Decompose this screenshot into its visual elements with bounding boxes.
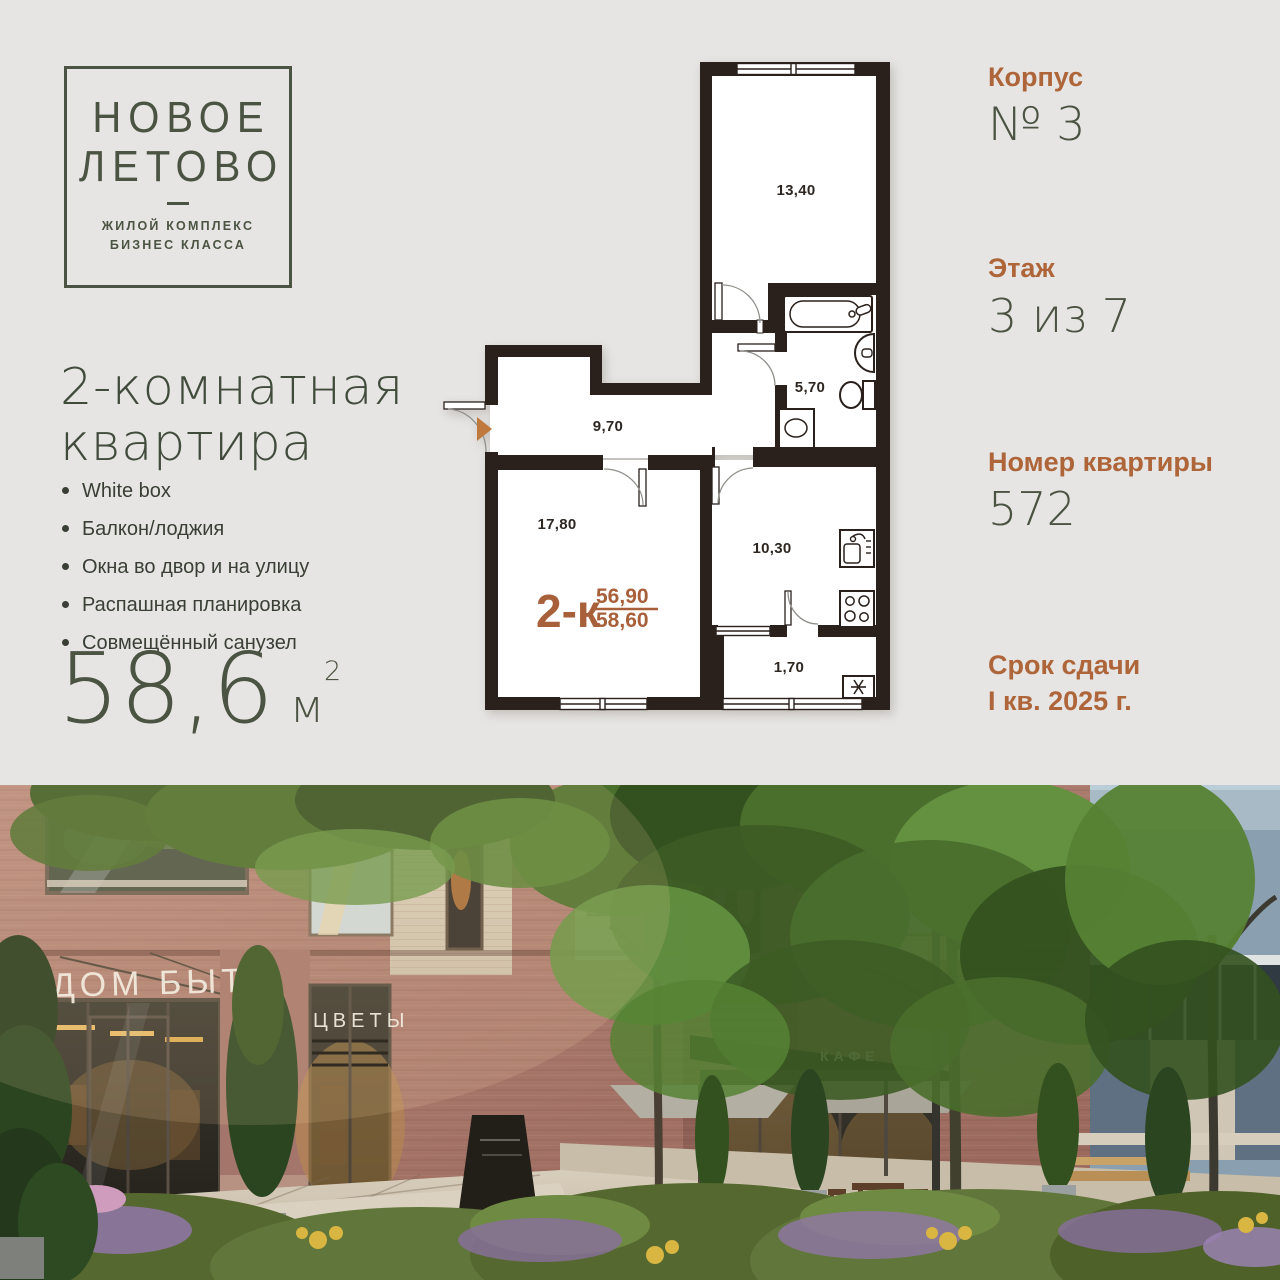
building-value: № 3 <box>988 97 1085 151</box>
feature-item: White box <box>62 480 309 503</box>
living-area-total: 56,90 <box>596 585 649 608</box>
bedroom-area: 13,40 <box>776 182 815 199</box>
apartment-type: 2-к <box>536 585 601 637</box>
stove-icon <box>840 591 874 627</box>
apartment-title-line2: квартира <box>60 416 404 472</box>
floor-value: 3 из 7 <box>988 289 1131 343</box>
bathroom-area: 5,70 <box>795 379 825 396</box>
logo-sub2: БИЗНЕС КЛАССА <box>102 236 254 255</box>
flower-bed <box>0 1183 1280 1280</box>
logo-subtitle: ЖИЛОЙ КОМПЛЕКС БИЗНЕС КЛАССА <box>102 217 254 256</box>
apartment-number-label: Номер квартиры <box>988 447 1213 478</box>
planter <box>0 1237 44 1279</box>
building-label: Корпус <box>988 62 1083 93</box>
logo-divider <box>167 202 189 205</box>
feature-item: Балкон/лоджия <box>62 518 309 541</box>
toilet-icon <box>863 381 875 409</box>
feature-item: Окна во двор и на улицу <box>62 556 309 579</box>
flyer-page: НОВОЕ ЛЕТОВО ЖИЛОЙ КОМПЛЕКС БИЗНЕС КЛАСС… <box>0 0 1280 1280</box>
logo-sub1: ЖИЛОЙ КОМПЛЕКС <box>102 217 254 236</box>
logo-line2: ЛЕТОВО <box>72 143 284 191</box>
total-area: 58,6м2 <box>58 640 341 737</box>
apartment-number-value: 572 <box>988 482 1076 536</box>
feature-item: Распашная планировка <box>62 594 309 617</box>
floor-label: Этаж <box>988 253 1055 284</box>
area-value: 58,6 <box>58 632 274 745</box>
area-unit: м <box>290 680 324 733</box>
deadline-value: I кв. 2025 г. <box>988 686 1132 717</box>
balcony-area: 1,70 <box>774 659 804 676</box>
apartment-type-block: 2-к 56,90 58,60 <box>536 585 658 637</box>
logo: НОВОЕ ЛЕТОВО ЖИЛОЙ КОМПЛЕКС БИЗНЕС КЛАСС… <box>64 66 292 288</box>
apartment-title-line1: 2-комнатная <box>60 360 404 416</box>
deadline-label: Срок сдачи <box>988 650 1140 681</box>
living-area: 17,80 <box>537 516 576 533</box>
floor-plan: 13,40 5,70 9,70 17,80 10,30 1,70 2-к 56,… <box>437 52 915 720</box>
logo-title: НОВОЕ ЛЕТОВО <box>72 95 284 192</box>
kitchen-area: 10,30 <box>752 540 791 557</box>
logo-line1: НОВОЕ <box>72 95 284 143</box>
apartment-title: 2-комнатная квартира <box>60 360 404 472</box>
street-photo: ДОМ БЫТА ЦВЕТЫ КАФЕ <box>0 785 1280 1280</box>
entrance-arrow-icon <box>477 417 492 441</box>
area-superscript: 2 <box>324 656 341 687</box>
full-area-total: 58,60 <box>596 609 649 632</box>
hall-area: 9,70 <box>593 418 623 435</box>
